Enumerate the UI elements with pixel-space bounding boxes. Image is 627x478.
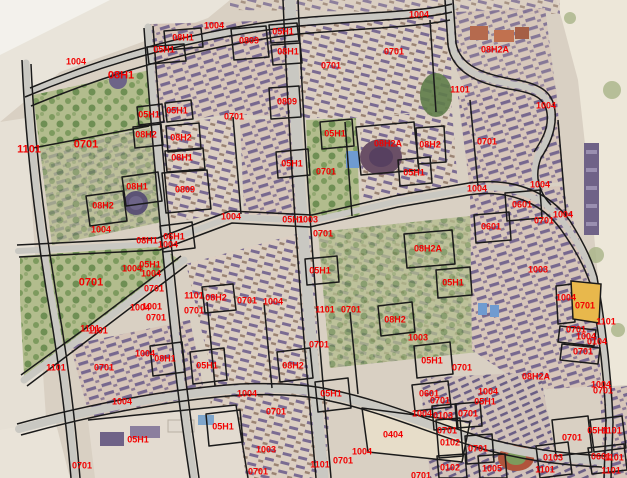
satellite-imagery-layer — [0, 0, 627, 478]
cadastral-map-viewport[interactable]: 100408H105H1080905H108H11004070108H2A100… — [0, 0, 627, 478]
highlighted-parcel[interactable] — [571, 281, 601, 323]
